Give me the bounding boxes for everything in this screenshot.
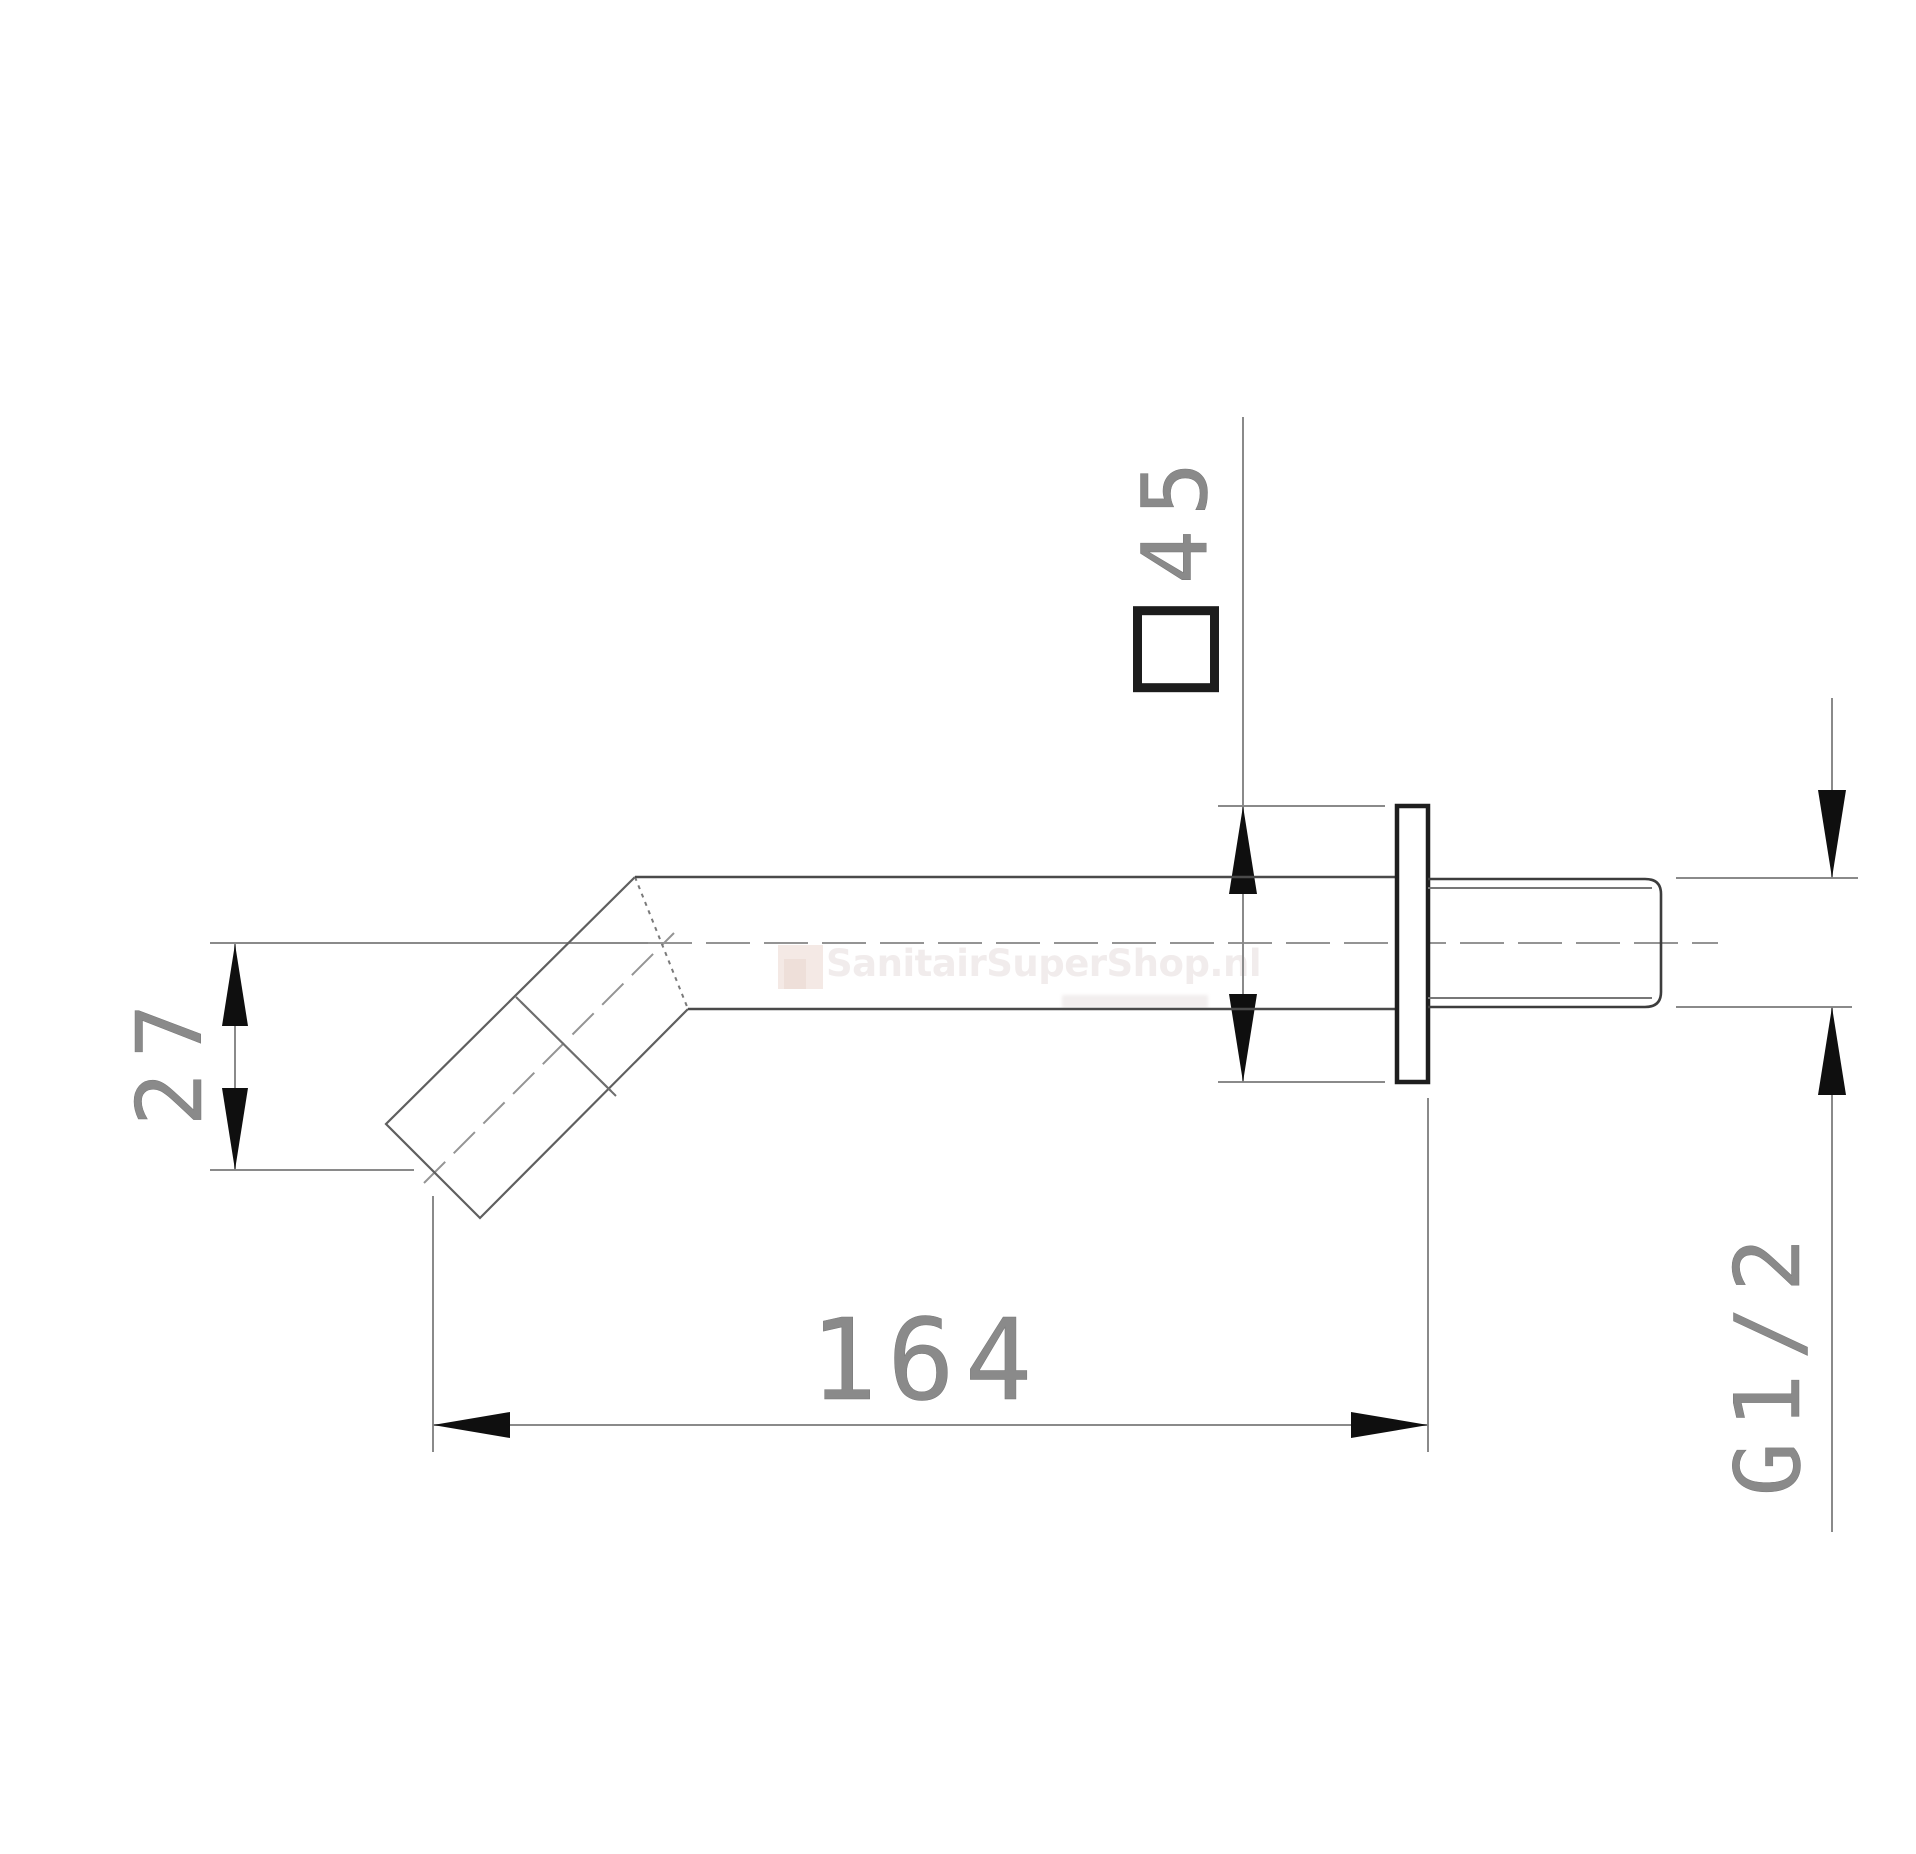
spout-nozzle-seam-2: [521, 1002, 616, 1096]
technical-drawing-page: SanitairSuperShop.nl: [0, 0, 1916, 1854]
dim-label-flange: 45: [1131, 448, 1221, 692]
dim-164-arrow-left: [433, 1412, 510, 1438]
dim-label-45-text: 45: [1131, 448, 1221, 584]
square-symbol-icon: [1133, 606, 1219, 692]
dim-27-arrow-up: [222, 944, 248, 1026]
wall-flange: [1397, 806, 1428, 1082]
dim-g12-arrow-down: [1818, 790, 1846, 878]
dim-164-arrow-right: [1351, 1412, 1428, 1438]
dim-g12-arrow-up: [1818, 1007, 1846, 1095]
drawing-linework: [0, 0, 1916, 1854]
dim-45-arrow-up: [1229, 806, 1257, 894]
spout-nozzle-outline: [386, 877, 688, 1218]
dim-label-27: 27: [126, 990, 216, 1126]
dim-27-arrow-down: [222, 1088, 248, 1170]
dim-label-164: 164: [810, 1305, 1042, 1417]
centerline-spout-axis-dashed: [424, 933, 674, 1183]
dim-label-g12: G1/2: [1724, 1224, 1814, 1497]
dim-45-arrow-down: [1229, 994, 1257, 1082]
